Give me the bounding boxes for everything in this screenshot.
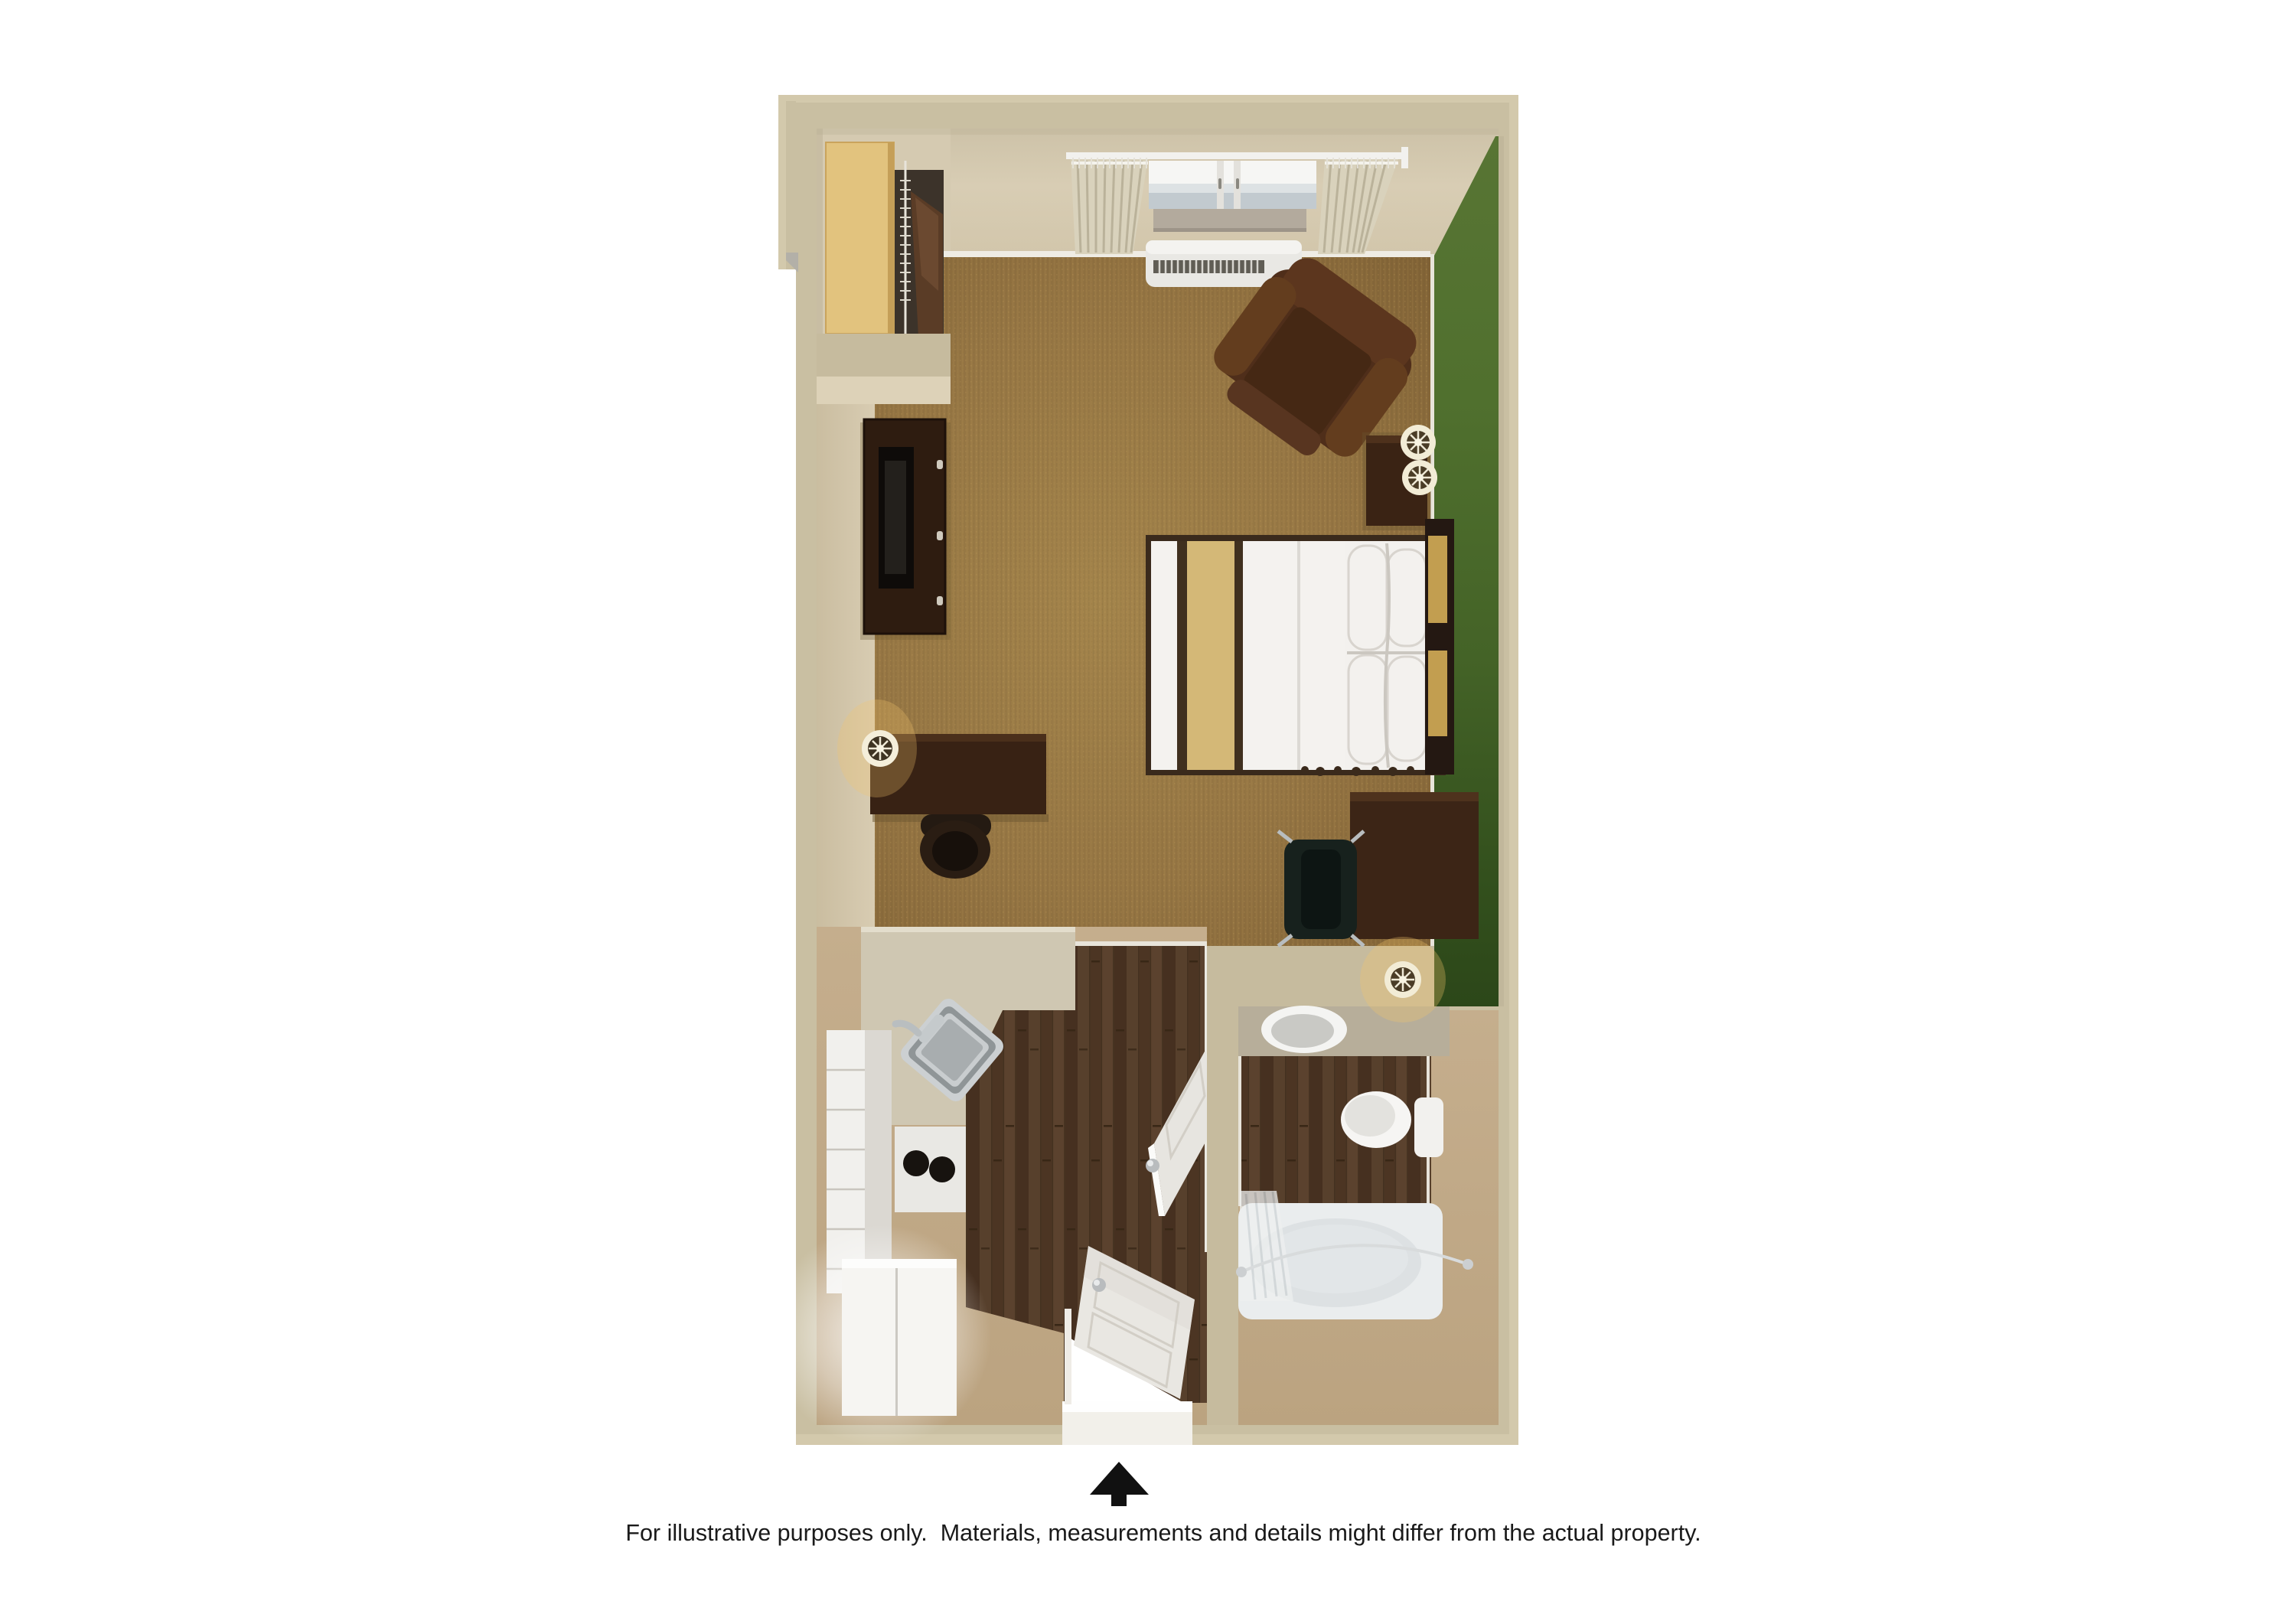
svg-text:For illustrative purposes only: For illustrative purposes only. Material… (625, 1520, 1701, 1546)
